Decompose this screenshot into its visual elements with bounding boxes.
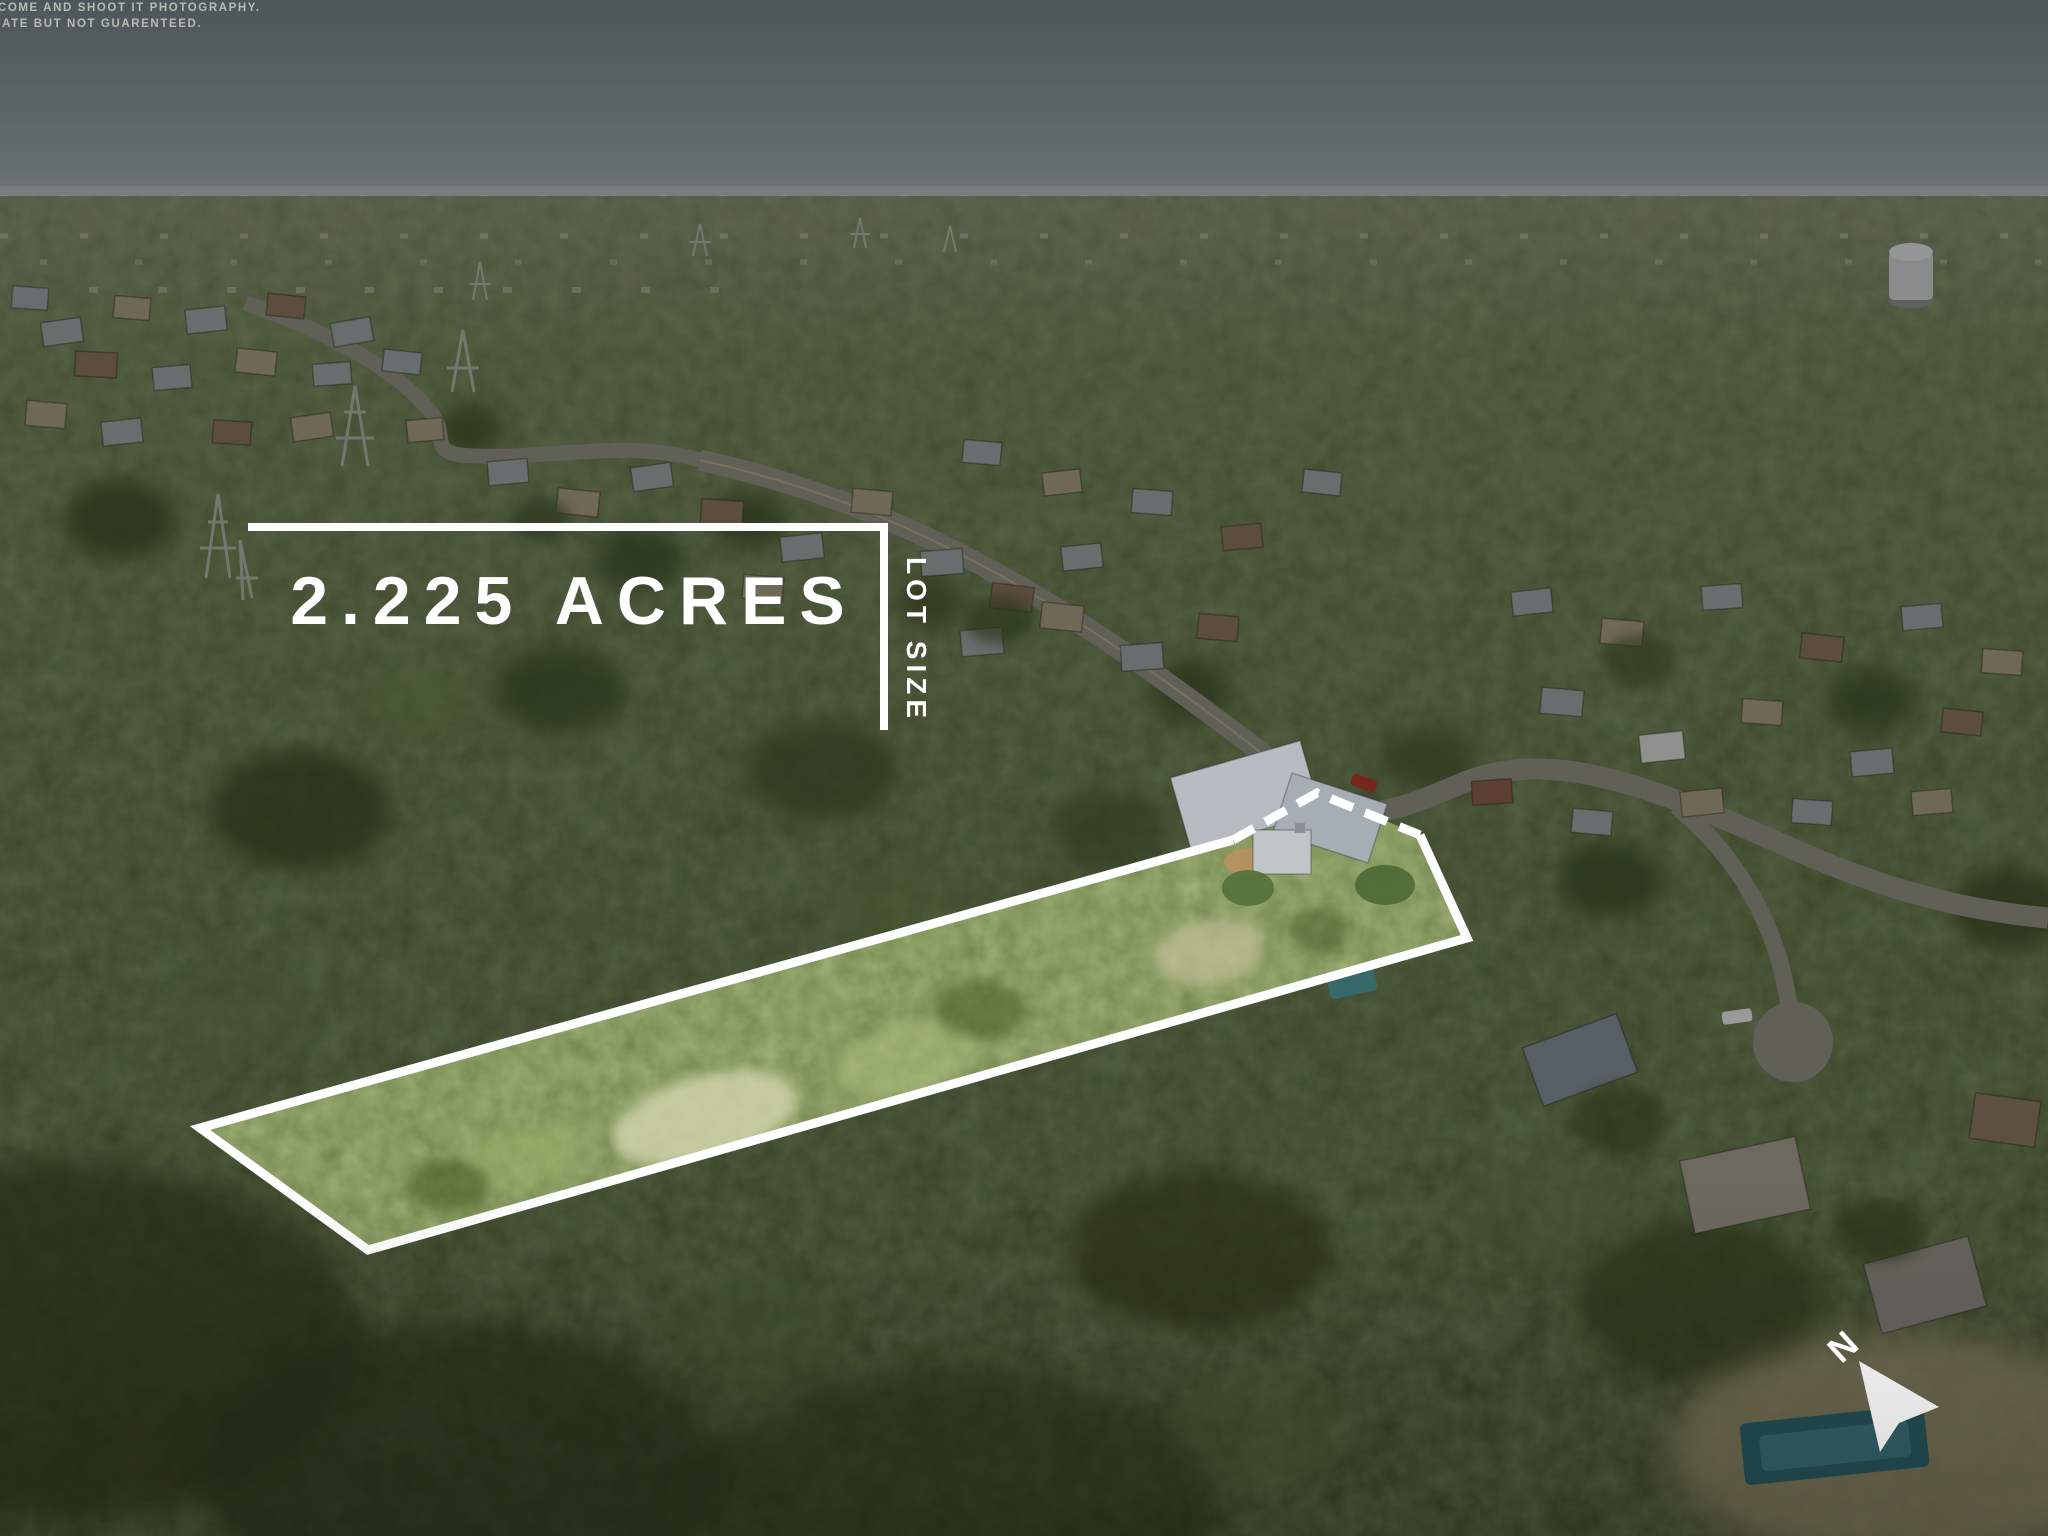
acreage-value: 2.225 ACRES [290, 562, 858, 640]
disclaimer: PROPERTY BOUNDARY CREATED BY COME AND SH… [0, 0, 1024, 32]
aerial-photo [0, 0, 2048, 1536]
real-estate-aerial-view: 2.225 ACRES LOT SIZE N PROPERTY BOUNDARY… [0, 0, 2048, 1536]
callout-bracket-vertical-line [880, 523, 888, 730]
callout-bracket-horizontal-line [248, 523, 888, 531]
disclaimer-line-1: PROPERTY BOUNDARY CREATED BY COME AND SH… [0, 0, 1024, 16]
lot-size-label: LOT SIZE [900, 557, 932, 723]
vignette [0, 1180, 2048, 1536]
disclaimer-line-2: MEASUREMENTS ARE ACCURATE BUT NOT GUAREN… [0, 16, 1024, 32]
